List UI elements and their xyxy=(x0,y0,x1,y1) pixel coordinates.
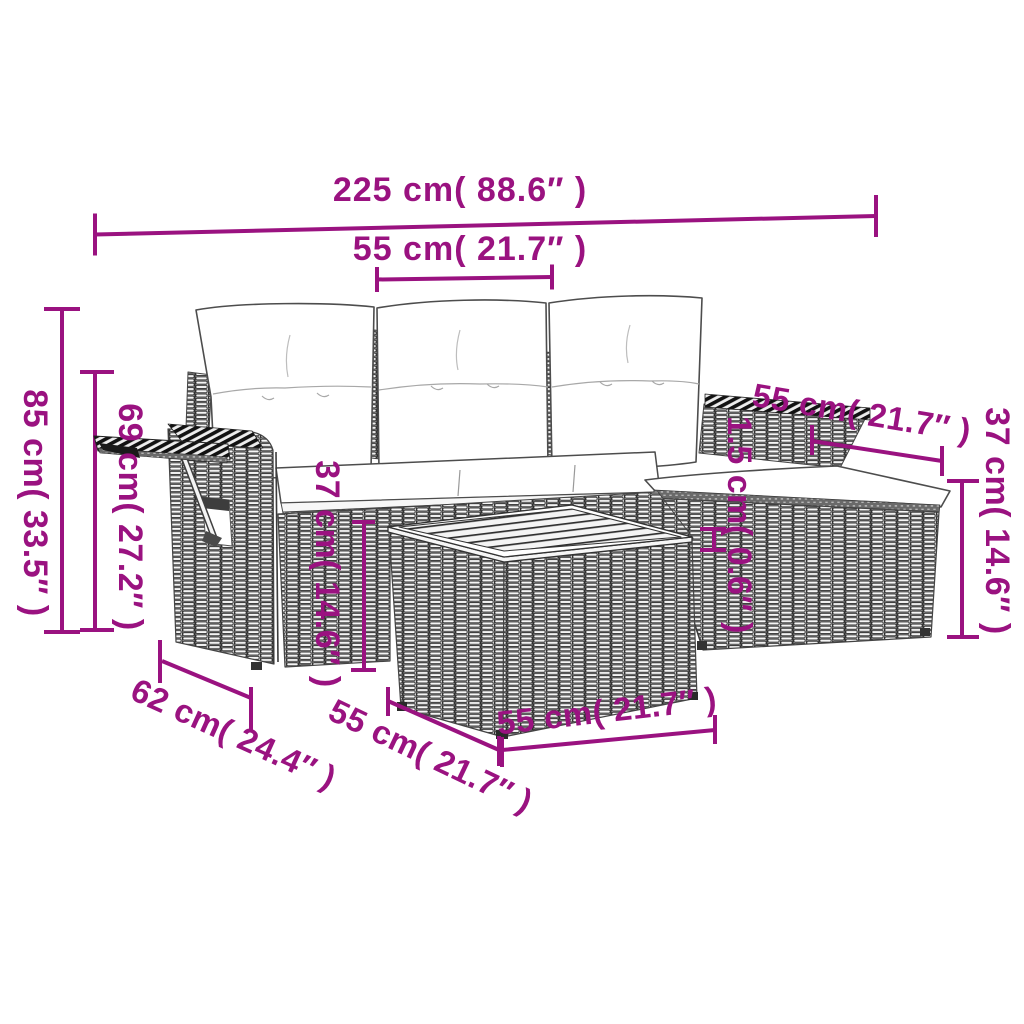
svg-text:55 cm( 21.7″ ): 55 cm( 21.7″ ) xyxy=(353,230,587,268)
svg-text:69 cm( 27.2″ ): 69 cm( 27.2″ ) xyxy=(111,403,149,630)
svg-text:85 cm( 33.5″ ): 85 cm( 33.5″ ) xyxy=(16,389,54,616)
svg-text:1.5 cm( 0.6″ ): 1.5 cm( 0.6″ ) xyxy=(720,416,758,634)
svg-text:225 cm( 88.6″ ): 225 cm( 88.6″ ) xyxy=(333,171,587,209)
svg-text:37 cm( 14.6″ ): 37 cm( 14.6″ ) xyxy=(308,460,346,687)
svg-text:37 cm( 14.6″ ): 37 cm( 14.6″ ) xyxy=(978,407,1016,634)
